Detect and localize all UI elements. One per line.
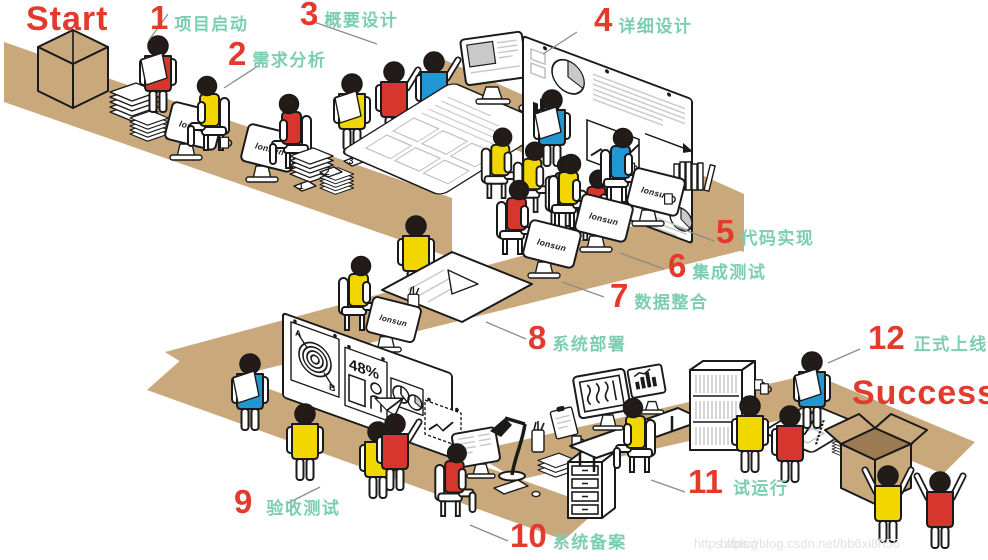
step-text: 代码实现 [740,224,814,249]
step-text: 集成测试 [692,258,766,283]
workflow-illustration: lonsun [0,0,988,560]
watermark: https://blog https://blog.csdn.net/bb6xi… [694,536,986,554]
step-label-7: 7 数据整合 [610,282,708,313]
step-text: 正式上线 [914,330,988,355]
watermark-text: https://blog.csdn.net/bb6xi8h56 [720,536,900,551]
step-label-6: 6 集成测试 [668,252,766,283]
step-number: 2 [228,40,246,68]
step-number: 11 [688,468,723,496]
step-label-9: 9 验收测试 [234,488,340,519]
step-number: 3 [300,0,318,28]
step-text: 试运行 [733,474,789,499]
pen-cup [532,421,544,452]
step-label-8: 8 系统部署 [528,324,626,355]
step-number: 6 [668,252,686,280]
step-number: 9 [234,488,252,516]
step-text: 系统部署 [552,330,626,355]
step-text: 项目启动 [174,10,248,35]
step-label-2: 2 需求分析 [228,40,326,71]
step-label-10: 10 系统备案 [510,522,627,553]
step-label-12: 12 正式上线 [868,324,988,355]
step-number: 5 [716,218,734,246]
step-text: 验收测试 [266,494,340,519]
step-number: 4 [594,6,612,34]
success-label: Success [852,374,988,413]
step-text: 系统备案 [553,528,627,553]
start-box [38,30,108,108]
step-text: 需求分析 [252,46,326,71]
step-number: 1 [150,4,168,32]
step-label-5: 5 代码实现 [716,218,814,249]
step-number: 7 [610,282,628,310]
step-number: 12 [868,324,905,352]
paper-tag: 2 [324,167,329,177]
cheering-figure [865,466,911,542]
start-label: Start [26,0,108,39]
software-process-infographic: lonsun [0,0,988,560]
step-label-3: 3 概要设计 [300,0,398,31]
mouse [532,491,540,496]
step-label-1: 1 项目启动 [150,4,248,35]
step-label-4: 4 详细设计 [594,6,692,37]
step-text: 数据整合 [634,288,708,313]
step-number: 8 [528,324,546,352]
step-label-11: 11 试运行 [688,468,788,499]
step-text: 详细设计 [618,12,692,37]
step-number: 10 [510,522,547,550]
step-text: 概要设计 [324,6,398,31]
paper-tag: 1 [298,181,303,191]
drawer-unit [568,452,615,518]
